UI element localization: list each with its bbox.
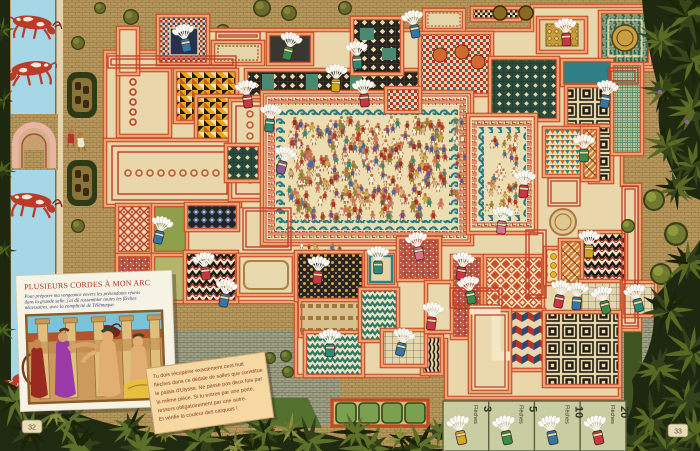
svg-text:Flèches: Flèches [563,405,569,424]
svg-text:5: 5 [527,406,539,412]
svg-text:Flèches: Flèches [609,405,615,424]
svg-text:Flèches: Flèches [472,405,478,424]
svg-text:20: 20 [618,406,630,418]
svg-text:32: 32 [28,425,36,432]
svg-text:Flèches: Flèches [518,405,524,424]
svg-text:33: 33 [674,429,682,436]
svg-text:10: 10 [572,406,584,418]
svg-text:3: 3 [481,406,493,412]
